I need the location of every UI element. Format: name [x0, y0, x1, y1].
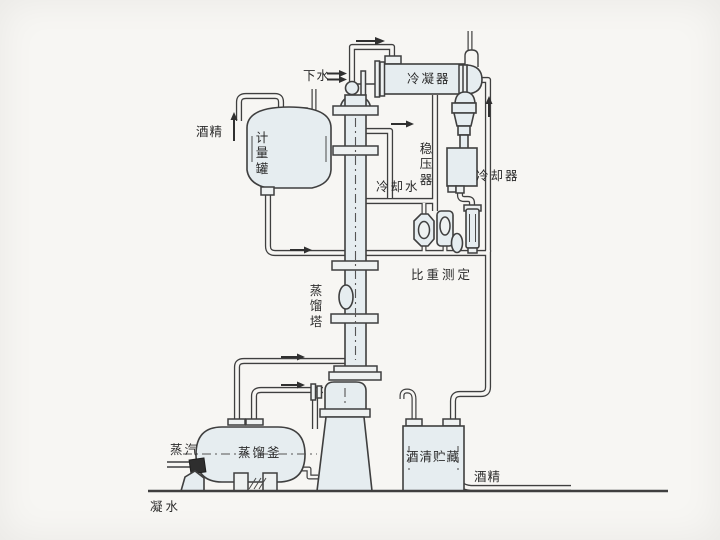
condenser-end-cap [467, 65, 482, 94]
label-measuring-tank: 计量罐 [254, 130, 270, 176]
label-steam: 蒸汽 [170, 443, 199, 457]
kettle-support [263, 473, 277, 491]
label-distillation-tower: 蒸馏塔 [308, 283, 324, 329]
flow-arrow-top [356, 37, 385, 45]
diagram-canvas [0, 0, 720, 540]
pressure-stabilizer-bellows [452, 92, 476, 149]
label-alcohol-storage: 酒清贮藏 [406, 450, 460, 464]
label-pressure-stabilizer: 稳压器 [418, 141, 434, 187]
flow-arrow-cooling [391, 121, 414, 128]
tower-skirt [317, 417, 372, 491]
label-cooling-water: 冷却水 [376, 180, 420, 194]
label-alcohol-feed: 酒精 [196, 125, 223, 139]
label-distillation-kettle: 蒸馏釜 [238, 446, 282, 460]
label-gravity-measurement: 比重测定 [411, 268, 473, 282]
condenser-top-nozzle [385, 56, 401, 64]
cooler [447, 148, 477, 193]
label-alcohol-out: 酒精 [474, 470, 501, 484]
label-cooler: 冷却器 [476, 169, 520, 183]
pipes [237, 31, 571, 488]
kettle-support [234, 473, 248, 491]
float [452, 234, 463, 253]
label-condensate: 凝水 [150, 500, 181, 514]
label-drain-water: 下水 [303, 69, 330, 83]
steam-valve [189, 458, 206, 474]
diagram-page: 下水 冷凝器 酒精 计量罐 稳压器 冷却水 冷却器 比重测定 蒸馏塔 蒸汽 蒸馏… [0, 0, 720, 540]
tower-top-ball [346, 82, 359, 95]
tower-sight-glass [339, 285, 353, 309]
hydrometer-cylinder [466, 209, 479, 248]
label-condenser: 冷凝器 [407, 72, 451, 86]
